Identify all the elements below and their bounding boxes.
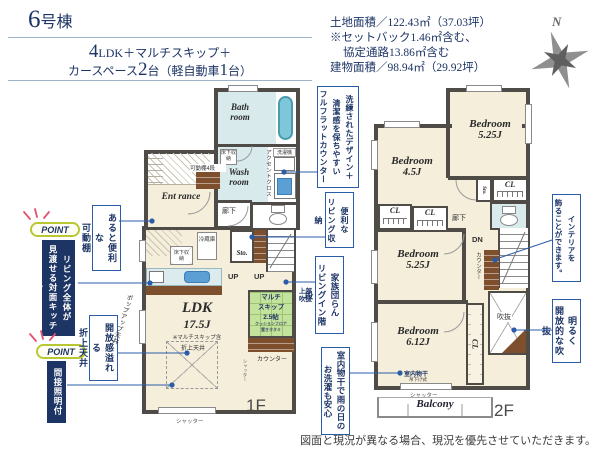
window-bed4-left xyxy=(371,322,378,362)
wall-bed4-top xyxy=(376,300,468,304)
window-ldk-left xyxy=(139,310,146,344)
toilet-tank-2f xyxy=(502,206,516,214)
compass-icon: N xyxy=(524,10,594,96)
window-bed2-left xyxy=(371,140,378,170)
cl2-label: CL xyxy=(414,208,446,217)
spec-car-pre: カースペース xyxy=(68,64,138,78)
callout-indoor-drying: 室内物干で雨の日の お洗濯も安心 xyxy=(321,347,350,435)
floorplan-sheet: 6号棟 4LDK＋マルチスキップ＋ カースペース2台（軽自動車1台） 土地面積／… xyxy=(0,0,600,449)
window-bed1-top xyxy=(466,85,502,92)
callout-living-stairs: 家族団らん リビングイン階段 xyxy=(315,256,344,334)
dn-label: DN xyxy=(472,235,483,244)
callout-movable-shelf: あると便利な 可動棚 xyxy=(92,205,121,271)
floor2-label: 2F xyxy=(494,401,514,421)
closet-cl1: CL xyxy=(378,204,412,230)
closet-cl2: CL xyxy=(412,206,448,232)
counter-1f xyxy=(248,338,294,352)
bed3-name: Bedroom xyxy=(386,248,450,260)
spec-car-end: 台） xyxy=(228,64,252,78)
cl4-label: CL xyxy=(471,305,480,383)
bed2-name: Bedroom xyxy=(380,155,444,167)
shutter-side-label: シャッター xyxy=(242,359,248,385)
point-badge-1: POINT xyxy=(30,222,80,237)
bath-label: Bath room xyxy=(221,102,259,122)
compass-n-label: N xyxy=(551,14,562,29)
closet-pipe-1 xyxy=(383,218,407,224)
counter-2f-label: カウンター xyxy=(474,252,482,290)
stair-storage-shelf xyxy=(254,230,266,263)
spec-car-mid: 台（軽自動車 xyxy=(147,64,219,78)
window-ldk-bottom xyxy=(158,407,216,414)
spec-kei-number: 1 xyxy=(219,60,228,79)
stairs-2f xyxy=(498,228,528,288)
hallway-2f-label: 廊下 xyxy=(452,213,466,223)
up-label-2: UP xyxy=(254,272,264,281)
closet-cl4: CL xyxy=(466,303,484,385)
callout-living-storage: 便利な リビング収納 xyxy=(325,192,354,248)
setback-note: ※セットバック1.46㎡含む、 xyxy=(330,31,491,46)
header-divider-bottom xyxy=(8,80,312,81)
bed4-name: Bedroom xyxy=(386,325,450,337)
void-label: 吹抜 xyxy=(496,312,512,322)
bed4-label: Bedroom 6.12J xyxy=(386,325,450,348)
bed3-size: 5.25J xyxy=(386,260,450,271)
building-number: 6 xyxy=(28,6,41,33)
bed2-label: Bedroom 4.5J xyxy=(380,155,444,178)
cl3-label: CL xyxy=(494,180,526,189)
underfloor-storage-kitchen-label: 床下収納 xyxy=(172,250,191,262)
balcony: Balcony xyxy=(377,397,493,418)
point-lighting-callout: 間接照明付き xyxy=(47,361,66,423)
washer-label: 洗濯機 xyxy=(273,148,296,157)
counter-2f xyxy=(484,250,499,290)
building-area: 建物面積／98.94㎡（29.92坪） xyxy=(330,61,491,76)
spec-line-2: カースペース2台（軽自動車1台） xyxy=(30,59,290,81)
disclaimer: 図面と現況が異なる場合、現況を優先させていただきます。 xyxy=(300,432,596,448)
multiskip-note2: 置きタタミ xyxy=(248,327,294,333)
point-kitchen-callout: リビング全体が 見渡せる対面キッチン xyxy=(42,240,75,336)
window-bed2-top xyxy=(384,121,420,128)
porch-steps xyxy=(148,153,163,185)
floor1-label: 1F xyxy=(246,396,266,416)
bed2-size: 4.5J xyxy=(380,167,444,178)
sink-icon xyxy=(184,271,210,283)
coved-ceiling-label: 折上天井 xyxy=(180,343,206,352)
hallway-1f-label: 廊下 xyxy=(222,206,236,216)
bed1-name: Bedroom xyxy=(458,118,522,130)
multiskip-line1: マルチ xyxy=(248,291,294,301)
storage-1f-label: Sto. xyxy=(232,249,252,257)
ldk-label: LDK 17.5J xyxy=(166,300,228,332)
window-bed4-bottom xyxy=(400,383,452,390)
land-area: 土地面積／122.43㎡（37.03坪） xyxy=(330,16,491,31)
vanity-sink-icon xyxy=(277,178,292,195)
closet-pipe-2 xyxy=(417,220,443,226)
bed1-size: 5.25J xyxy=(458,130,522,141)
window-bed3-left xyxy=(371,250,378,284)
closet-cl3: CL xyxy=(492,178,528,202)
upper-void-label: 上部吹抜 xyxy=(299,288,315,303)
bathtub-icon xyxy=(278,96,293,140)
toilet-icon-1f xyxy=(269,213,287,225)
callout-flat-counter: 洗練されたデザイン＋ 清潔感を保ちやすい フルフラットカウンター xyxy=(317,86,359,188)
spec-ldk-text: LDK＋マルチスキップ＋ xyxy=(98,46,231,60)
accent-cloth-label: アクセントクロス xyxy=(264,149,272,201)
counter-1f-label: カウンター xyxy=(250,354,294,363)
entrance-shelf xyxy=(196,172,220,189)
wall-hall-top xyxy=(218,200,252,203)
wall-bed3-right xyxy=(462,232,466,302)
kitchen-counter-front xyxy=(146,286,222,295)
bed4-size: 6.12J xyxy=(386,337,450,348)
header-divider-top xyxy=(8,37,312,38)
ldk-note: ※マルチスキップ含 xyxy=(163,333,231,341)
callout-bright-void: 明るく 開放的な吹抜 xyxy=(552,299,581,363)
window-bath xyxy=(228,85,258,92)
storage-2f-label: Sto. xyxy=(481,180,487,200)
multiskip-labels: マルチ スキップ 2.5帖 クッションフロア 置きタタミ xyxy=(248,291,294,333)
callout-interior-decor: インテリアを 飾ることができます。 xyxy=(552,194,581,282)
washer-icon xyxy=(274,157,295,171)
underfloor-storage-wash-label: 床下収納 xyxy=(220,149,237,165)
window-bed1-right xyxy=(525,104,532,144)
agreement-road-note: 協定通路13.86㎡含む xyxy=(330,46,491,61)
movable-shelf-4-label: 可動棚4段 xyxy=(190,164,226,172)
storage-1f-box xyxy=(230,230,254,263)
cl1-label: CL xyxy=(380,206,410,215)
balcony-label: Balcony xyxy=(379,398,491,410)
ldk-size: 17.5J xyxy=(166,317,228,332)
building-suffix: 号棟 xyxy=(41,14,73,31)
multiskip-line3: 2.5帖 xyxy=(248,311,294,321)
bed1-label: Bedroom 5.25J xyxy=(458,118,522,141)
up-label-1: UP xyxy=(228,272,238,281)
toilet-icon-2f xyxy=(500,214,518,226)
storage-2f-box: Sto. xyxy=(476,178,492,202)
multiskip-line2: スキップ xyxy=(248,301,294,311)
area-info: 土地面積／122.43㎡（37.03坪） ※セットバック1.46㎡含む、 協定通… xyxy=(330,16,491,76)
stove-icon xyxy=(149,271,164,283)
bed3-label: Bedroom 5.25J xyxy=(386,248,450,271)
fridge-label: 冷蔵庫 xyxy=(197,235,217,243)
stairs-1f xyxy=(266,230,294,272)
wall-bed1-left xyxy=(446,128,450,178)
ldk-name: LDK xyxy=(166,300,228,317)
entrance-label: Ent rance xyxy=(150,192,212,203)
shutter-bottom-label: シャッター xyxy=(176,417,204,425)
void-corner-wedge xyxy=(502,329,526,353)
building-title: 6号棟 xyxy=(28,6,73,34)
toilet-tank-1f xyxy=(271,205,285,213)
closet-pipe-3 xyxy=(497,191,523,197)
window-kitchen xyxy=(139,240,146,262)
